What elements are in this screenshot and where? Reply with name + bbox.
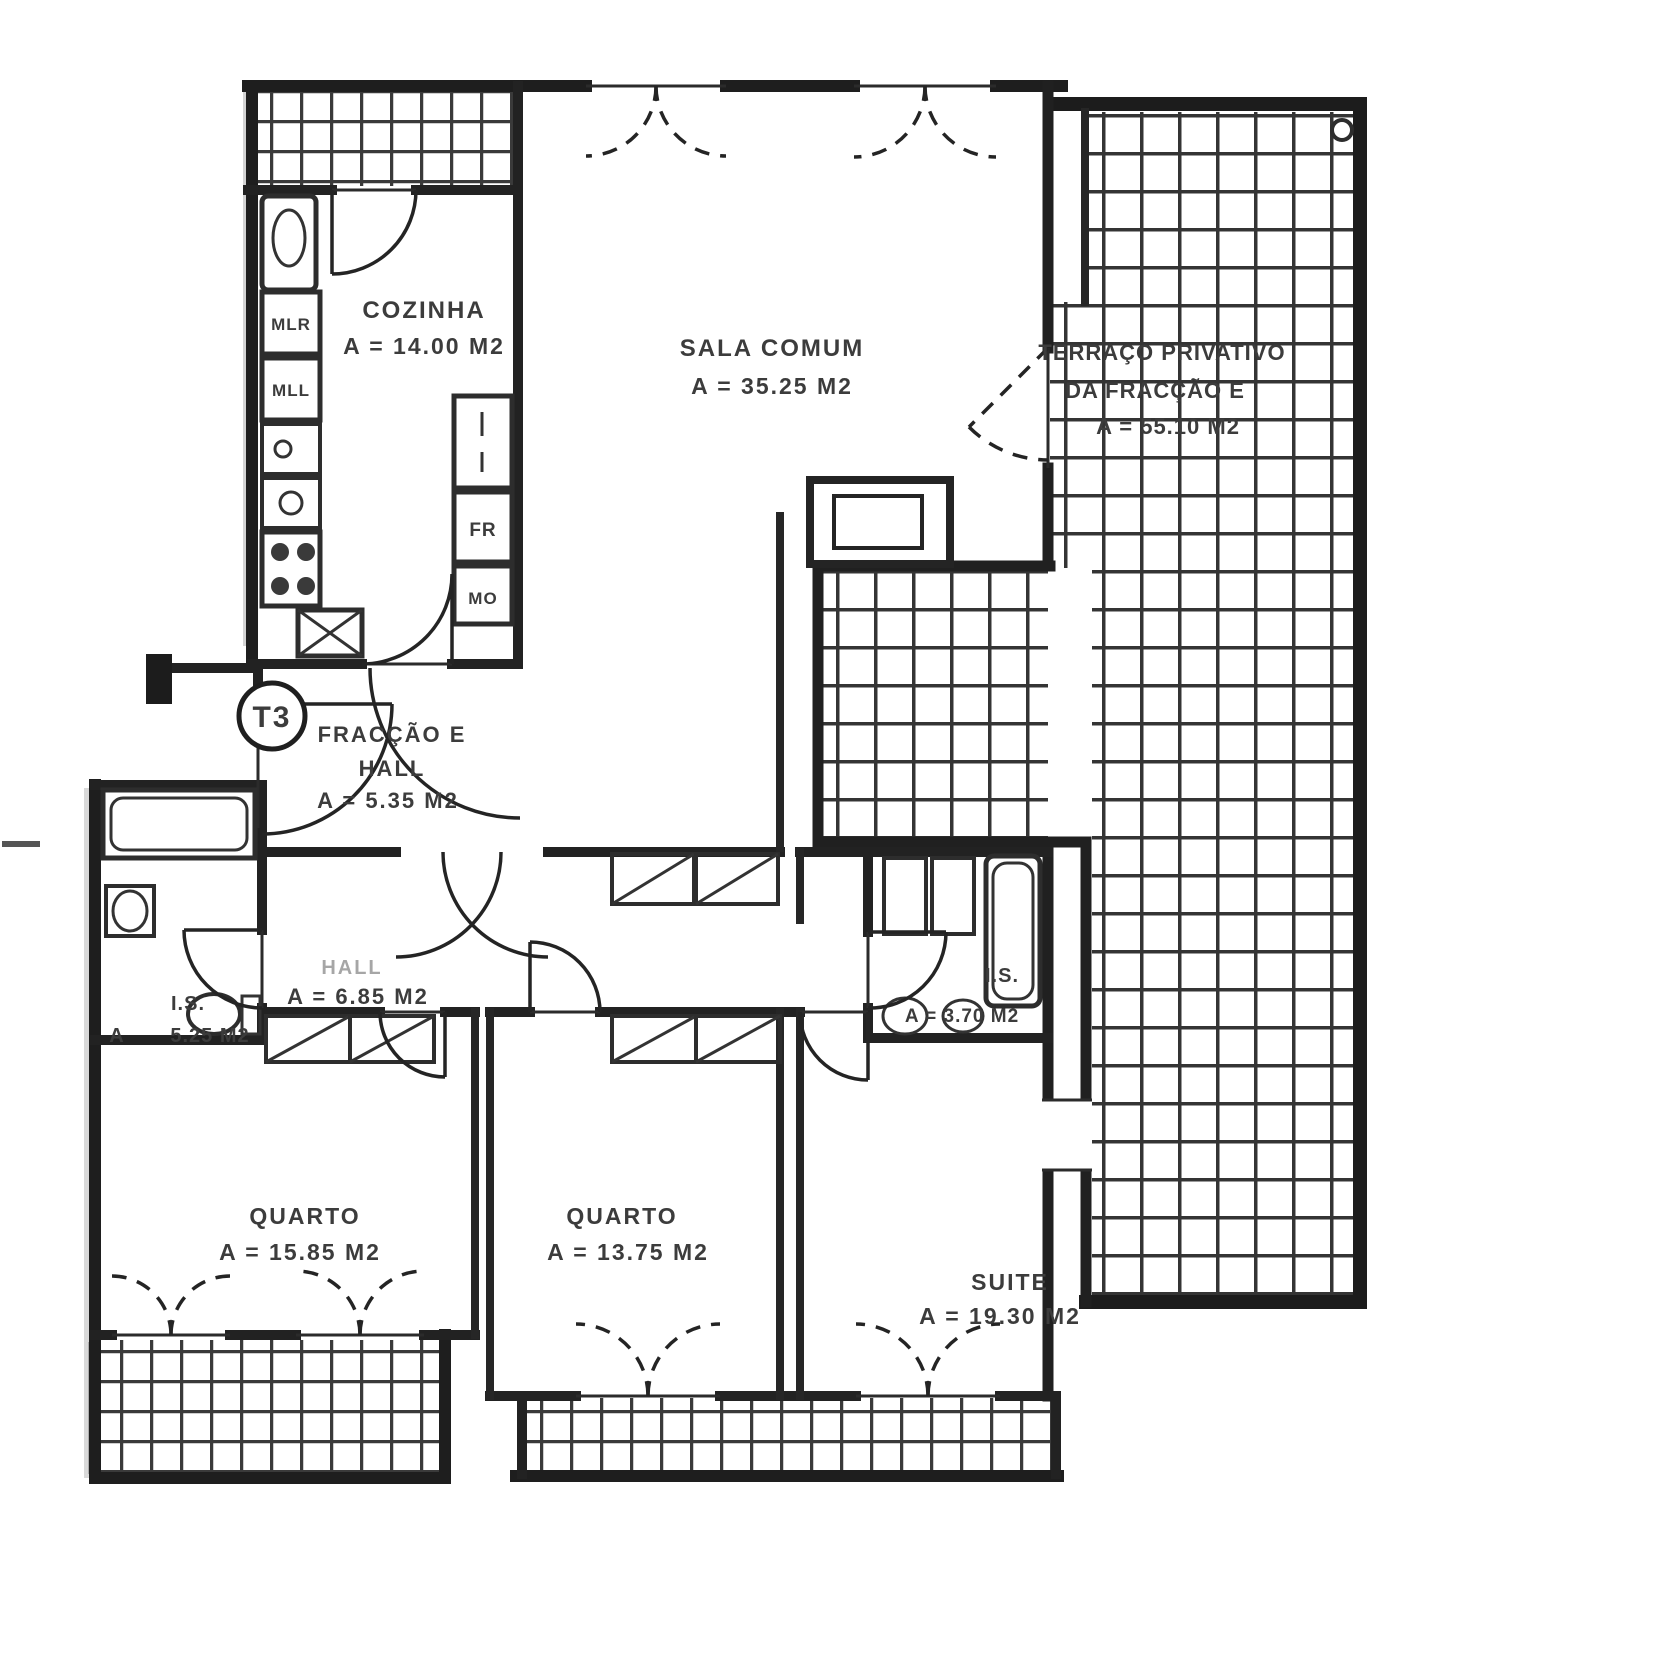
room-area-sala: A = 35.25 M2 — [691, 373, 853, 399]
room-label-is-right: I.S. — [985, 965, 1019, 987]
unit-badge: T3 — [239, 683, 305, 749]
room-area-quarto2: A = 13.75 M2 — [547, 1239, 709, 1265]
room-area-hall: A = 6.85 M2 — [287, 984, 429, 1009]
room-area-terraco: A = 55.10 M2 — [1096, 414, 1240, 439]
room-label-quarto1: QUARTO — [249, 1203, 360, 1229]
room-label-sala: SALA COMUM — [680, 335, 864, 362]
floor-plan: T3 COZINHA A = 14.00 M2 SALA COMUM A = 3… — [0, 0, 1673, 1665]
room-area-is-right: A = 3.70 M2 — [905, 1006, 1019, 1027]
room-label-is-left: I.S. — [171, 993, 205, 1015]
room-label-terraco-2: DA FRACÇÃO E — [1065, 378, 1245, 403]
appliance-label-mo: MO — [468, 589, 497, 608]
floor-plan-page: T3 COZINHA A = 14.00 M2 SALA COMUM A = 3… — [0, 0, 1673, 1665]
room-label-suite: SUITE — [971, 1269, 1049, 1295]
room-label-fraccao: FRACÇÃO E — [318, 722, 467, 747]
appliance-label-mlr: MLR — [271, 315, 311, 334]
appliance-label-mll: MLL — [272, 381, 310, 400]
appliance-label-fr: FR — [469, 520, 496, 541]
room-label-quarto2: QUARTO — [566, 1203, 677, 1229]
room-area-entry-hall: A = 5.35 M2 — [317, 788, 459, 813]
room-label-entry-hall: HALL — [359, 756, 426, 781]
room-label-cozinha: COZINHA — [362, 297, 485, 324]
room-area-cozinha: A = 14.00 M2 — [343, 333, 505, 359]
unit-badge-label: T3 — [252, 701, 291, 734]
room-area-quarto1: A = 15.85 M2 — [219, 1239, 381, 1265]
landing-pier — [146, 654, 172, 704]
room-area-is-left-prefix: A — [109, 1025, 124, 1047]
hearth-shaft — [810, 480, 950, 564]
room-label-terraco-1: TERRAÇO PRIVATIVO — [1038, 340, 1285, 365]
room-area-is-left: 5.25 M2 — [170, 1025, 249, 1047]
room-label-hall: HALL — [321, 957, 382, 979]
room-area-suite: A = 19.30 M2 — [919, 1303, 1081, 1329]
